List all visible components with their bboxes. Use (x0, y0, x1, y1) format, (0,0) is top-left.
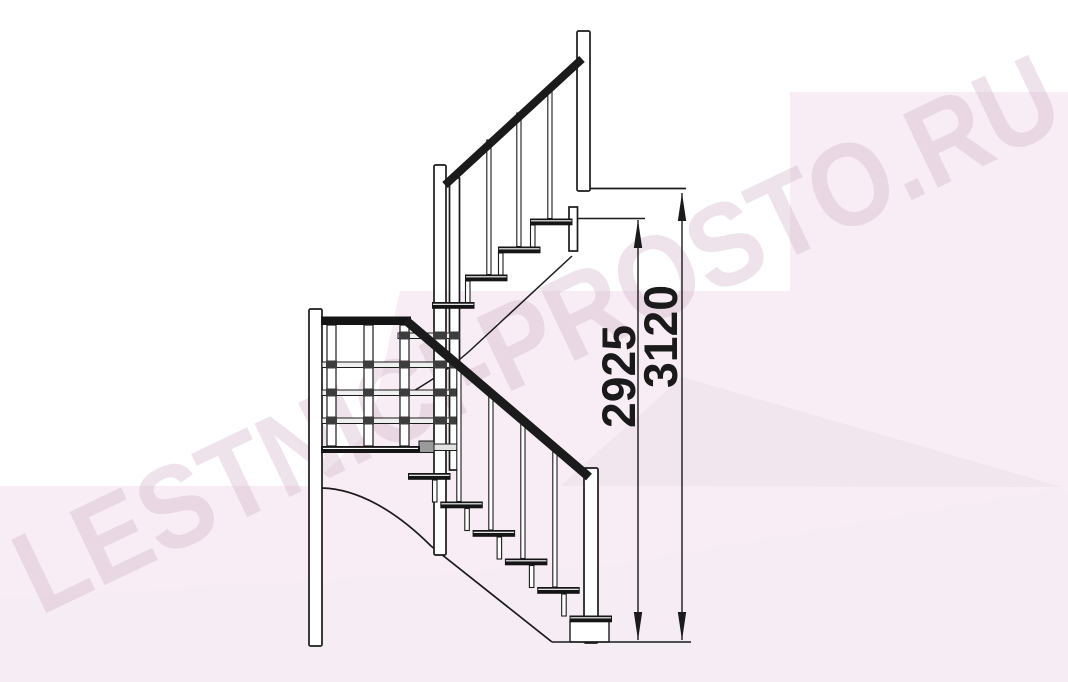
landing-tread (321, 446, 420, 453)
riser (466, 281, 471, 303)
tread (408, 473, 451, 480)
staircase-elevation-svg: LESTNICI-PROSTO.RU (0, 0, 1068, 682)
riser (499, 253, 504, 275)
baluster (521, 421, 525, 559)
tread (473, 530, 515, 537)
dimension-label: 3120 (634, 285, 687, 388)
top-riser-board (569, 207, 578, 251)
riser (465, 509, 470, 531)
riser (531, 225, 536, 247)
tread (505, 559, 548, 566)
baluster (489, 394, 493, 530)
baluster (517, 113, 521, 247)
baluster (487, 140, 491, 275)
baluster (364, 325, 373, 446)
tread (432, 302, 475, 309)
baluster (553, 449, 557, 587)
left-newel-post (309, 309, 322, 646)
riser (562, 594, 567, 616)
top-newel-post (577, 31, 590, 191)
landing-handrail (321, 317, 411, 326)
bottom-step-block (570, 621, 609, 642)
riser (529, 566, 534, 588)
landing-connector-block (419, 441, 434, 453)
baluster (457, 367, 461, 502)
staircase-drawing-canvas: LESTNICI-PROSTO.RU (0, 0, 1068, 682)
tread (465, 275, 508, 282)
baluster (400, 325, 409, 446)
baluster (548, 86, 552, 219)
tread (570, 616, 613, 623)
tread (440, 502, 483, 509)
landing-connector-rail (434, 444, 459, 451)
tread (537, 587, 580, 594)
baluster (327, 325, 336, 446)
tread (498, 247, 541, 254)
riser (433, 480, 438, 502)
tread (530, 219, 573, 226)
riser (497, 537, 502, 559)
